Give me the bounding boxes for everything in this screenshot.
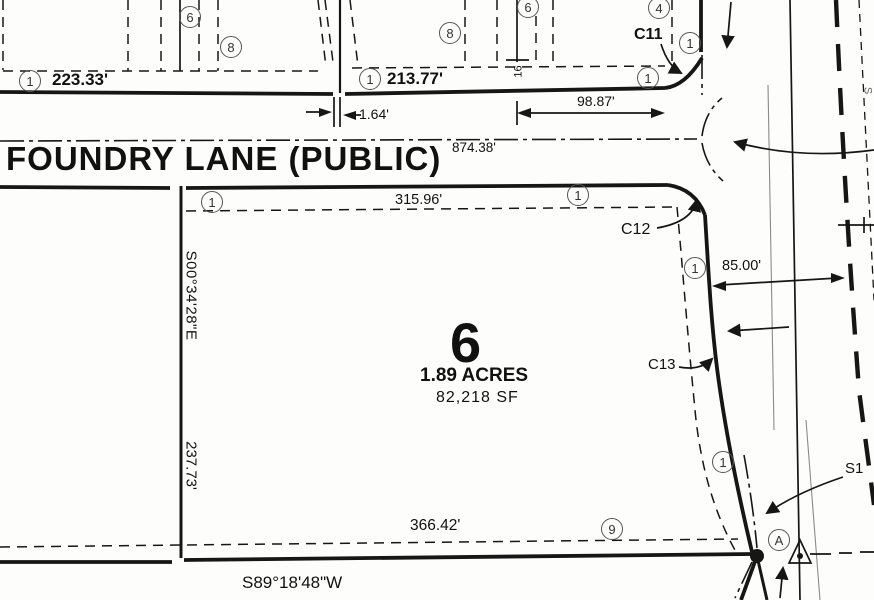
lot6-boundary bbox=[0, 186, 752, 562]
curve-label-c13: C13 bbox=[648, 357, 676, 372]
south-bearing-label: S89°18'48"W bbox=[242, 574, 342, 591]
circled-marker-1: 1 bbox=[679, 32, 701, 54]
dim-223: 223.33' bbox=[52, 71, 108, 88]
circled-marker-1: 1 bbox=[201, 191, 223, 213]
west-bearing-label: S00°34'28"E bbox=[184, 241, 199, 351]
curve-label-c12: C12 bbox=[621, 222, 650, 238]
circled-marker-8: 8 bbox=[220, 36, 242, 58]
lot-number: 6 bbox=[450, 315, 481, 371]
dim-87438: 874.38' bbox=[452, 141, 496, 155]
centerlines bbox=[0, 55, 757, 598]
dim-8500: 85.00' bbox=[722, 259, 761, 274]
upper-lot-dashed-lines bbox=[3, 0, 672, 71]
survey-linework bbox=[0, 0, 874, 600]
circled-marker-a: A bbox=[768, 529, 790, 551]
dim-23773: 237.73' bbox=[184, 434, 199, 498]
clipped-edge-text: S bbox=[862, 84, 873, 98]
lot-acres: 1.89 ACRES bbox=[420, 366, 528, 385]
circled-marker-1: 1 bbox=[19, 70, 41, 92]
easement-width-label: 16 bbox=[514, 62, 525, 82]
east-road-edge-dashed bbox=[836, 0, 874, 505]
dim-213: 213.77' bbox=[387, 70, 443, 87]
dim-9887: 98.87' bbox=[577, 94, 615, 108]
circled-marker-9: 9 bbox=[601, 518, 623, 540]
plat-map: FOUNDRY LANE (PUBLIC) 223.33' 213.77' 1.… bbox=[0, 0, 874, 600]
circled-marker-1: 1 bbox=[684, 257, 706, 279]
circled-marker-8: 8 bbox=[439, 22, 461, 44]
circled-marker-1: 1 bbox=[637, 67, 659, 89]
circled-marker-1: 1 bbox=[567, 184, 589, 206]
circled-marker-1: 1 bbox=[712, 451, 734, 473]
street-name-label: FOUNDRY LANE (PUBLIC) bbox=[6, 142, 441, 175]
circled-marker-1: 1 bbox=[359, 68, 381, 90]
lot-sqft: 82,218 SF bbox=[436, 390, 519, 406]
corner-monument-dot bbox=[750, 549, 764, 563]
dim-164: 1.64' bbox=[359, 107, 389, 121]
line-label-s1: S1 bbox=[845, 461, 863, 476]
curve-label-c11: C11 bbox=[634, 27, 662, 43]
circled-marker-6: 6 bbox=[179, 6, 201, 28]
dim-31596: 315.96' bbox=[395, 193, 442, 208]
dim-36642: 366.42' bbox=[410, 518, 460, 534]
